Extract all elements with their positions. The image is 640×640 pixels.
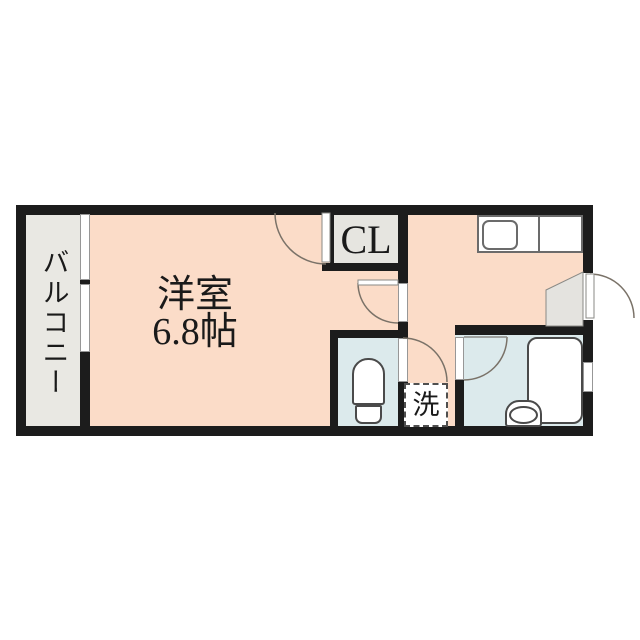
kitchen-sink-icon [482, 220, 518, 250]
toilet-doorway [398, 338, 408, 382]
wall-bottom [16, 426, 593, 436]
hall-doorway [398, 283, 408, 322]
main-room-label: 洋室 6.8帖 [100, 277, 290, 351]
washing-machine-label: 洗 [413, 392, 440, 419]
entrance-door-swing-arc [590, 274, 634, 318]
balcony-window-lower [80, 284, 90, 352]
entrance-doorway [583, 273, 593, 320]
wall-closet-bottom [322, 263, 408, 271]
kitchen-counter-divider [538, 215, 540, 253]
toilet-base-icon [355, 405, 382, 424]
wall-top [16, 205, 593, 215]
wall-toilet-top [330, 330, 408, 338]
wall-room-hall-upper [398, 205, 408, 283]
closet-label: CL [334, 215, 398, 263]
wall-bathroom-top [455, 325, 593, 335]
washing-machine-area: 洗 [404, 383, 448, 427]
bathroom-doorway [455, 337, 464, 380]
wall-left [16, 205, 26, 436]
main-room-size: 6.8帖 [100, 314, 290, 351]
wall-balcony-divider [80, 352, 90, 426]
wall-bathroom-left [455, 380, 464, 436]
main-room-name: 洋室 [100, 277, 290, 314]
wall-toilet-left [330, 330, 338, 436]
wall-right [583, 205, 593, 436]
floorplan: 洗 バルコニー 洋室 6.8帖 CL [0, 0, 640, 640]
washbasin-bowl-icon [509, 406, 538, 424]
toilet-icon [352, 358, 385, 405]
balcony-label: バルコニー [36, 228, 72, 418]
bathroom-window [583, 362, 593, 392]
balcony-window-upper [80, 214, 90, 280]
